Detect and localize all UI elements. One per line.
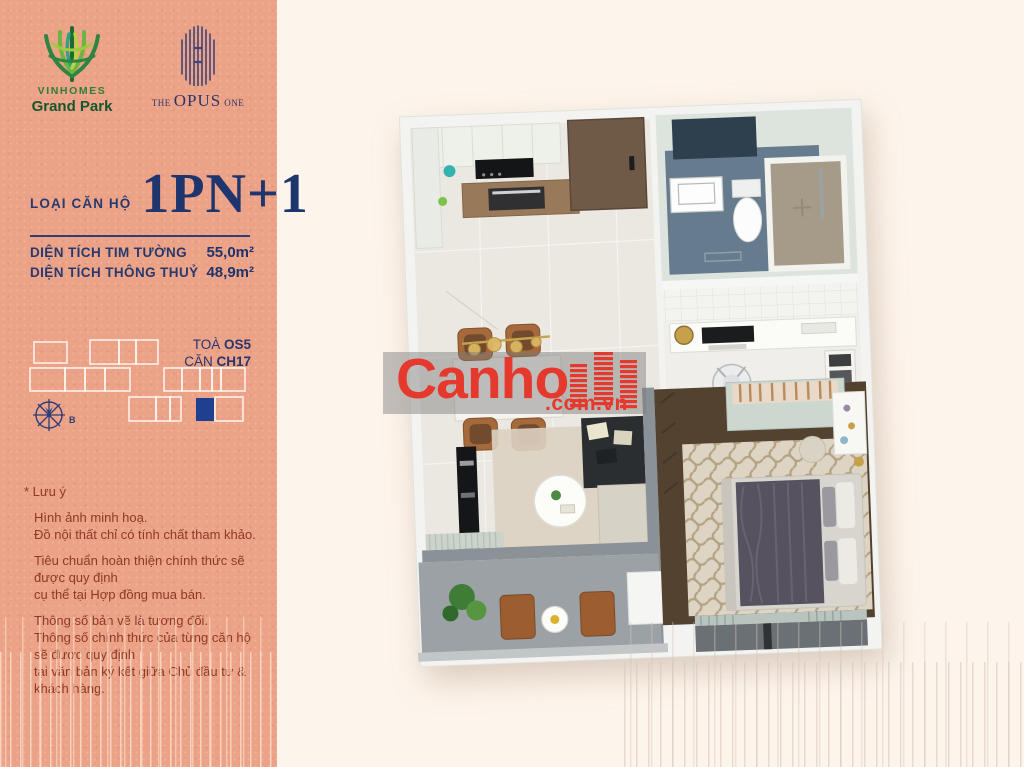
note-line: Thông số bản vẽ là tương đối. — [34, 613, 208, 628]
opus-word-opus: OPUS — [174, 91, 221, 111]
opus-building-icon — [176, 24, 220, 86]
shower — [767, 158, 847, 269]
area-row-tim-tuong: DIỆN TÍCH TIM TƯỜNG 55,0m² — [30, 244, 254, 261]
note-line: Tiêu chuẩn hoàn thiện chính thức sẽ được… — [34, 553, 245, 585]
note-paragraph: Thông số bản vẽ là tương đối. Thông số c… — [34, 612, 260, 697]
watermark-brand: Canho — [396, 346, 568, 412]
balcony-chair — [580, 591, 616, 636]
unit-type-value: 1PN+1 — [141, 168, 309, 221]
compass-icon — [30, 396, 68, 434]
bedside-vanity — [832, 391, 866, 454]
logo-row: VINHOMES Grand Park — [24, 22, 254, 115]
note-line: Đồ nội thất chỉ có tính chất tham khảo. — [34, 527, 256, 542]
building-label: TOÀ — [193, 337, 221, 352]
building-unit-info: TOÀ OS5 CĂN CH17 — [184, 336, 251, 370]
toilet-tank — [732, 179, 761, 197]
unit-label: CĂN — [184, 354, 213, 369]
area-row-thong-thuy: DIỆN TÍCH THÔNG THUỶ 48,9m² — [30, 264, 254, 281]
bedroom-balcony — [695, 609, 868, 652]
bathroom — [656, 108, 858, 281]
note-line: Thông số chính thức của từng căn hộ sẽ đ… — [34, 630, 251, 662]
sidebar: VINHOMES Grand Park — [0, 0, 277, 767]
unit-type-row: LOẠI CĂN HỘ 1PN+1 — [30, 168, 252, 221]
opus-word-the: THE — [152, 98, 171, 108]
balcony-chair — [500, 594, 536, 639]
unit-type-label: LOẠI CĂN HỘ — [30, 196, 131, 221]
vinhomes-wordmark: VINHOMES — [38, 85, 107, 97]
note-line: tại văn bản ký kết giữa Chủ đầu tư & khá… — [34, 664, 246, 696]
vinhomes-subtitle: Grand Park — [32, 98, 113, 115]
opus-logo: THE OPUS ONE — [146, 22, 250, 111]
balcony — [415, 553, 669, 662]
opus-wordmark: THE OPUS ONE — [152, 91, 244, 111]
unit-divider — [30, 235, 250, 237]
vinhomes-tree-icon — [39, 22, 105, 82]
notes-title: * Lưu ý — [24, 483, 260, 500]
flyer-canvas: VINHOMES Grand Park — [0, 0, 1024, 767]
area-label: DIỆN TÍCH THÔNG THUỶ — [30, 265, 199, 280]
unit-row: CĂN CH17 — [184, 353, 251, 370]
lounge-area — [491, 416, 648, 554]
compass: B — [30, 396, 76, 434]
vinhomes-logo: VINHOMES Grand Park — [24, 22, 120, 115]
bed — [722, 474, 867, 611]
note-paragraph: Tiêu chuẩn hoàn thiện chính thức sẽ được… — [34, 552, 260, 603]
table-lamp — [675, 326, 694, 345]
area-value: 48,9m² — [206, 264, 254, 281]
unit-value: CH17 — [216, 354, 251, 369]
note-line: Hình ảnh minh hoạ. — [34, 510, 147, 525]
sink-vanity — [670, 177, 723, 213]
note-paragraph: Hình ảnh minh hoạ. Đồ nội thất chỉ có tí… — [34, 509, 260, 543]
curtain — [425, 531, 504, 550]
pouf — [799, 436, 826, 463]
watermark-domain: .com.vn — [545, 392, 628, 416]
notes: * Lưu ý Hình ảnh minh hoạ. Đồ nội thất c… — [24, 483, 260, 706]
area-label: DIỆN TÍCH TIM TƯỜNG — [30, 245, 187, 260]
area-value: 55,0m² — [206, 244, 254, 261]
balcony-cabinet — [627, 571, 667, 624]
wardrobe — [726, 378, 846, 430]
watermark-band: Canho .com.vn — [383, 352, 646, 414]
entry-door — [568, 118, 647, 211]
bedroom — [654, 377, 876, 653]
opus-word-one: ONE — [224, 98, 244, 108]
building-value: OS5 — [224, 337, 251, 352]
building-row: TOÀ OS5 — [184, 336, 251, 353]
note-line: cụ thể tại Hợp đồng mua bán. — [34, 587, 206, 602]
unit-highlight-cell — [196, 398, 214, 421]
coffee-table — [533, 474, 587, 528]
monitor — [702, 326, 755, 344]
compass-north-label: B — [69, 415, 76, 425]
bathroom-mirror — [672, 116, 757, 159]
